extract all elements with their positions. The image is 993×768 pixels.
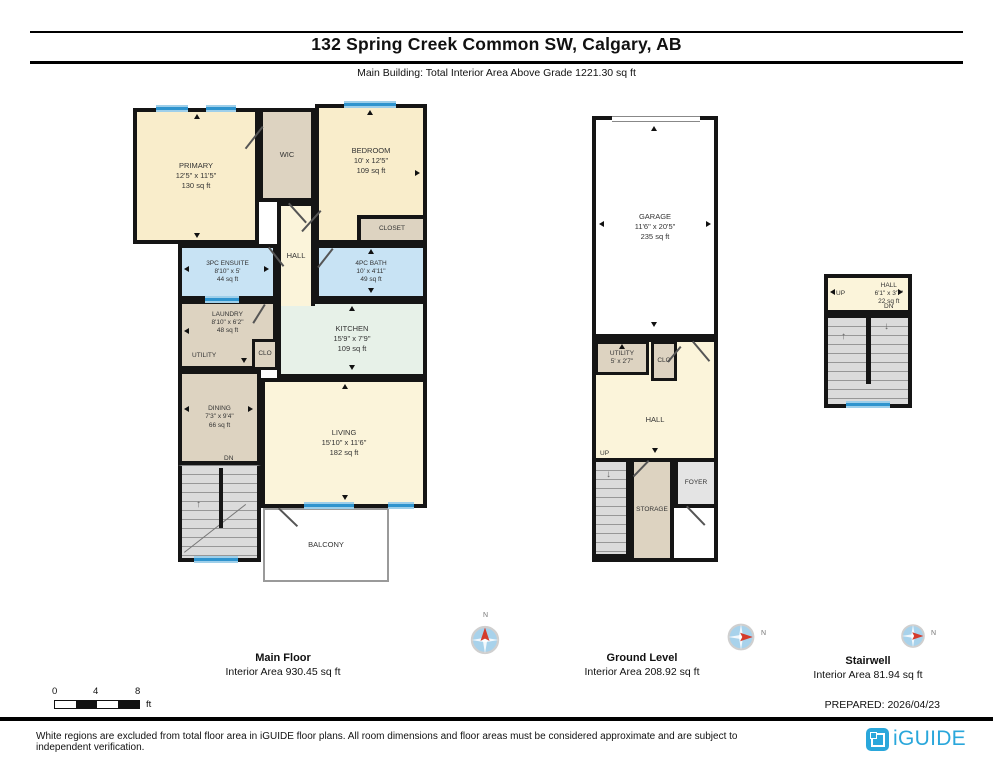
stair-down-arrow-icon: ↓ — [606, 470, 611, 480]
room-label: PRIMARY 12'5" x 11'5" 130 sq ft — [176, 161, 217, 190]
dimension-arrow — [619, 344, 625, 349]
dimension-arrow — [651, 322, 657, 327]
header-bottom-rule — [30, 61, 963, 64]
iguide-logo: iGUIDE — [866, 727, 966, 751]
room-label: CLOSET — [379, 225, 405, 233]
room-label: LIVING 15'10" x 11'6" 182 sq ft — [322, 428, 367, 457]
dimension-arrow — [194, 233, 200, 238]
room-label: 3PC ENSUITE 8'10" x 5' 44 sq ft — [206, 260, 249, 284]
dimension-arrow — [248, 406, 253, 412]
iguide-logo-icon — [866, 728, 889, 751]
scale-segment — [97, 701, 118, 708]
compass-icon-main — [467, 622, 503, 663]
room-label: BEDROOM 10' x 12'5" 109 sq ft — [352, 146, 391, 175]
room-label: BALCONY — [308, 540, 344, 550]
compass-icon-stairwell — [898, 621, 928, 656]
dimension-arrow — [599, 221, 604, 227]
staircase-ground — [592, 458, 630, 558]
dimension-arrow — [368, 288, 374, 293]
dimension-arrow — [349, 306, 355, 311]
room-label: HALL — [646, 415, 665, 425]
page-subtitle: Main Building: Total Interior Area Above… — [0, 67, 993, 79]
room-wic: WIC — [259, 108, 315, 202]
dimension-arrow — [652, 448, 658, 453]
room-clo-main: CLO — [252, 339, 278, 370]
room-balcony: BALCONY — [263, 508, 389, 582]
stair-down-arrow-icon: ↓ — [884, 322, 889, 332]
window-marker — [304, 502, 354, 509]
room-label: CLO — [258, 350, 271, 358]
scale-unit-label: ft — [146, 699, 151, 710]
exterior-wall — [714, 505, 718, 562]
header-top-rule — [30, 31, 963, 33]
scale-tick-0: 0 — [52, 686, 57, 697]
dimension-arrow — [415, 170, 420, 176]
scale-segment — [118, 701, 139, 708]
dimension-arrow — [184, 266, 189, 272]
iguide-logo-text: iGUIDE — [893, 727, 966, 751]
dimension-arrow — [184, 406, 189, 412]
scale-segment — [76, 701, 97, 708]
stairs-dn-label: DN — [884, 303, 893, 310]
caption-main-floor: Main Floor Interior Area 930.45 sq ft — [183, 652, 383, 678]
compass-icon-ground — [724, 620, 758, 659]
window-marker — [206, 105, 236, 112]
compass-north-label: N — [483, 612, 488, 619]
dimension-arrow — [184, 328, 189, 334]
room-label: UTILITY 5' x 2'7" — [610, 350, 634, 366]
window-marker — [194, 556, 238, 563]
iguide-logo-icon-dot — [870, 732, 877, 739]
scale-tick-4: 4 — [93, 686, 98, 697]
room-label: DINING 7'3" x 9'4" 66 sq ft — [205, 405, 233, 429]
dimension-arrow — [706, 221, 711, 227]
room-label-utility: UTILITY — [192, 352, 216, 359]
caption-ground-level: Ground Level Interior Area 208.92 sq ft — [542, 652, 742, 678]
room-label: 4PC BATH 10' x 4'11" 49 sq ft — [355, 260, 386, 284]
compass-rose — [724, 620, 758, 654]
room-label: LAUNDRY 8'10" x 6'2" 48 sq ft — [211, 311, 243, 335]
disclaimer-text: White regions are excluded from total fl… — [36, 731, 786, 753]
room-label: FOYER — [685, 479, 707, 487]
room-label: HALL — [287, 251, 306, 261]
window-marker — [846, 401, 890, 408]
room-garage: GARAGE 11'6" x 20'5" 235 sq ft — [592, 116, 718, 338]
room-foyer: FOYER — [674, 458, 718, 508]
scale-tick-8: 8 — [135, 686, 140, 697]
room-primary: PRIMARY 12'5" x 11'5" 130 sq ft — [133, 108, 259, 244]
dimension-arrow — [368, 249, 374, 254]
stairs-up-label: UP — [600, 450, 609, 457]
scale-segment — [55, 701, 76, 708]
dimension-arrow — [264, 266, 269, 272]
exterior-wall — [592, 558, 718, 562]
window-marker — [156, 105, 188, 112]
compass-north-label: N — [931, 630, 936, 637]
stair-divider — [866, 318, 871, 384]
dimension-arrow — [367, 110, 373, 115]
room-label: KITCHEN 15'9" x 7'9" 109 sq ft — [334, 324, 371, 353]
room-closet: CLOSET — [357, 215, 427, 244]
room-clo-ground: CLO — [651, 341, 677, 381]
room-label: WIC — [280, 150, 295, 160]
prepared-date: PREPARED: 2026/04/23 — [825, 699, 940, 711]
dimension-arrow — [830, 289, 835, 295]
dimension-arrow — [349, 365, 355, 370]
compass-north-label: N — [761, 630, 766, 637]
dimension-arrow — [241, 358, 247, 363]
door-swing — [686, 506, 705, 526]
room-ensuite: 3PC ENSUITE 8'10" x 5' 44 sq ft — [178, 244, 277, 300]
room-label: STORAGE — [636, 506, 668, 514]
garage-door-line — [612, 116, 700, 117]
page-title: 132 Spring Creek Common SW, Calgary, AB — [0, 34, 993, 55]
garage-door-line — [612, 121, 700, 122]
room-living: LIVING 15'10" x 11'6" 182 sq ft — [261, 378, 427, 508]
window-marker — [388, 502, 414, 509]
stair-up-arrow-icon: ↑ — [841, 332, 846, 342]
compass-rose — [467, 622, 503, 658]
dimension-arrow — [651, 126, 657, 131]
scale-bar — [54, 700, 140, 709]
floorplan-page: 132 Spring Creek Common SW, Calgary, AB … — [0, 0, 993, 768]
dimension-arrow — [342, 495, 348, 500]
compass-rose — [898, 621, 928, 651]
dimension-arrow — [898, 289, 903, 295]
footer-rule — [0, 717, 993, 721]
window-marker — [344, 101, 396, 108]
room-hall-main: HALL — [277, 202, 315, 306]
window-marker — [205, 296, 239, 303]
caption-stairwell: Stairwell Interior Area 81.94 sq ft — [768, 655, 968, 681]
stair-up-arrow-icon: ↑ — [196, 500, 201, 510]
dimension-arrow — [342, 384, 348, 389]
stairs-dn-label: DN — [224, 455, 233, 462]
room-dining: DINING 7'3" x 9'4" 66 sq ft — [178, 370, 261, 465]
dimension-arrow — [194, 114, 200, 119]
stairs-up-label: UP — [836, 290, 845, 297]
room-label: GARAGE 11'6" x 20'5" 235 sq ft — [635, 212, 676, 241]
stair-divider — [219, 468, 223, 528]
